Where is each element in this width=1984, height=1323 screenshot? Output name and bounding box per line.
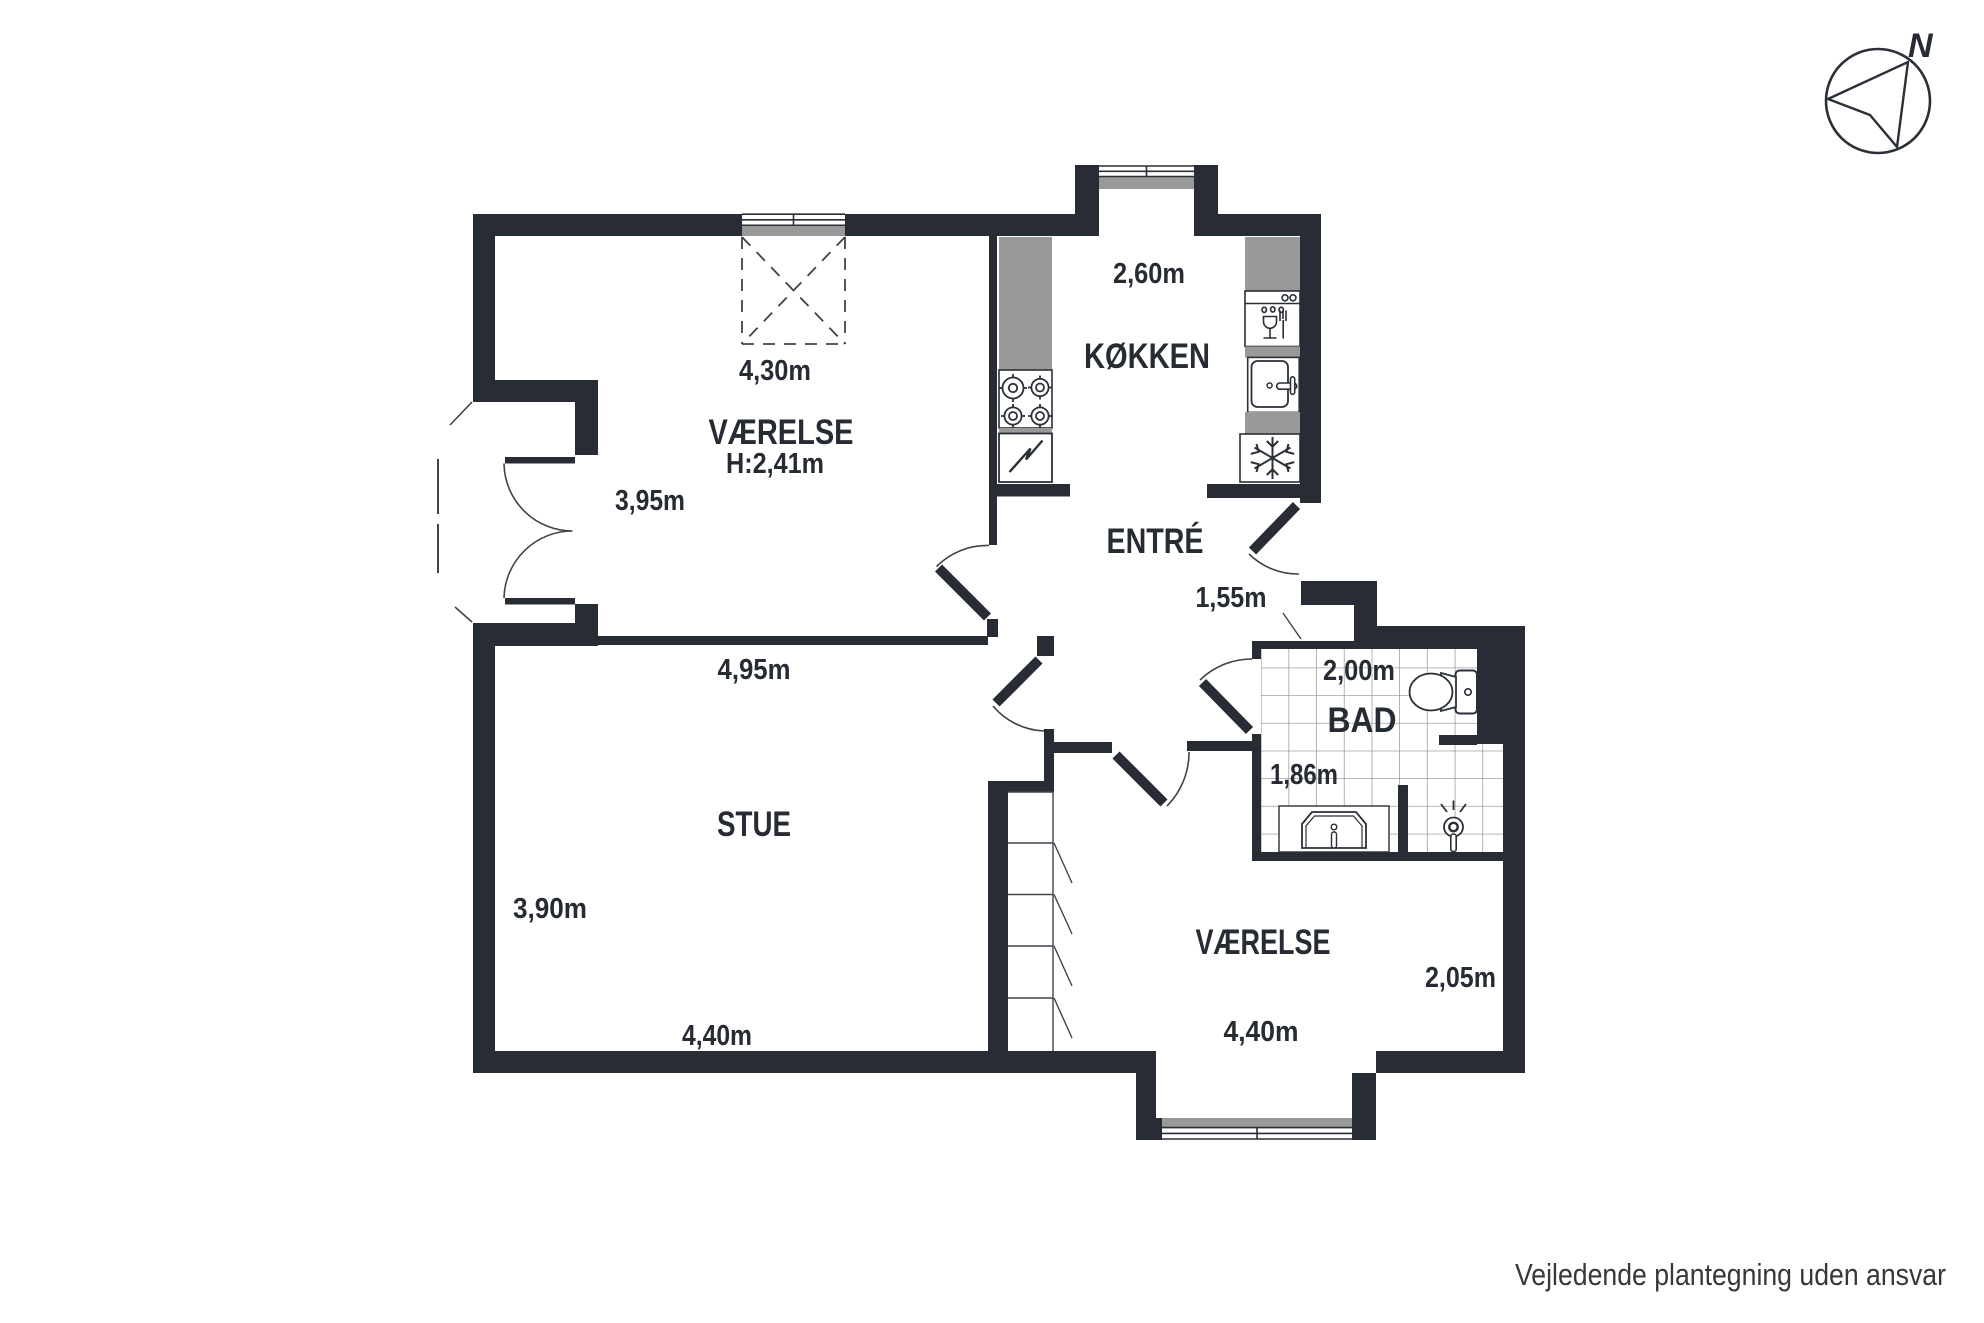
svg-text:BAD: BAD (1328, 701, 1397, 740)
svg-text:VÆRELSE: VÆRELSE (1196, 923, 1331, 962)
svg-text:STUE: STUE (717, 805, 791, 844)
svg-text:VÆRELSE: VÆRELSE (709, 413, 854, 452)
svg-text:4,40m: 4,40m (682, 1020, 752, 1052)
svg-text:1,86m: 1,86m (1270, 759, 1338, 791)
svg-text:4,40m: 4,40m (1224, 1016, 1299, 1048)
svg-text:H:2,41m: H:2,41m (726, 448, 824, 480)
svg-text:4,30m: 4,30m (739, 355, 811, 387)
svg-text:KØKKEN: KØKKEN (1084, 337, 1210, 376)
svg-text:3,90m: 3,90m (513, 893, 587, 925)
svg-text:2,00m: 2,00m (1323, 655, 1395, 687)
svg-text:Vejledende plantegning uden an: Vejledende plantegning uden ansvar (1515, 1257, 1946, 1292)
svg-text:2,05m: 2,05m (1425, 962, 1496, 994)
svg-text:4,95m: 4,95m (718, 654, 791, 686)
svg-text:N: N (1908, 27, 1934, 65)
svg-text:1,55m: 1,55m (1196, 582, 1267, 614)
svg-text:3,95m: 3,95m (615, 485, 685, 517)
svg-text:ENTRÉ: ENTRÉ (1107, 521, 1204, 561)
svg-text:2,60m: 2,60m (1113, 258, 1185, 290)
